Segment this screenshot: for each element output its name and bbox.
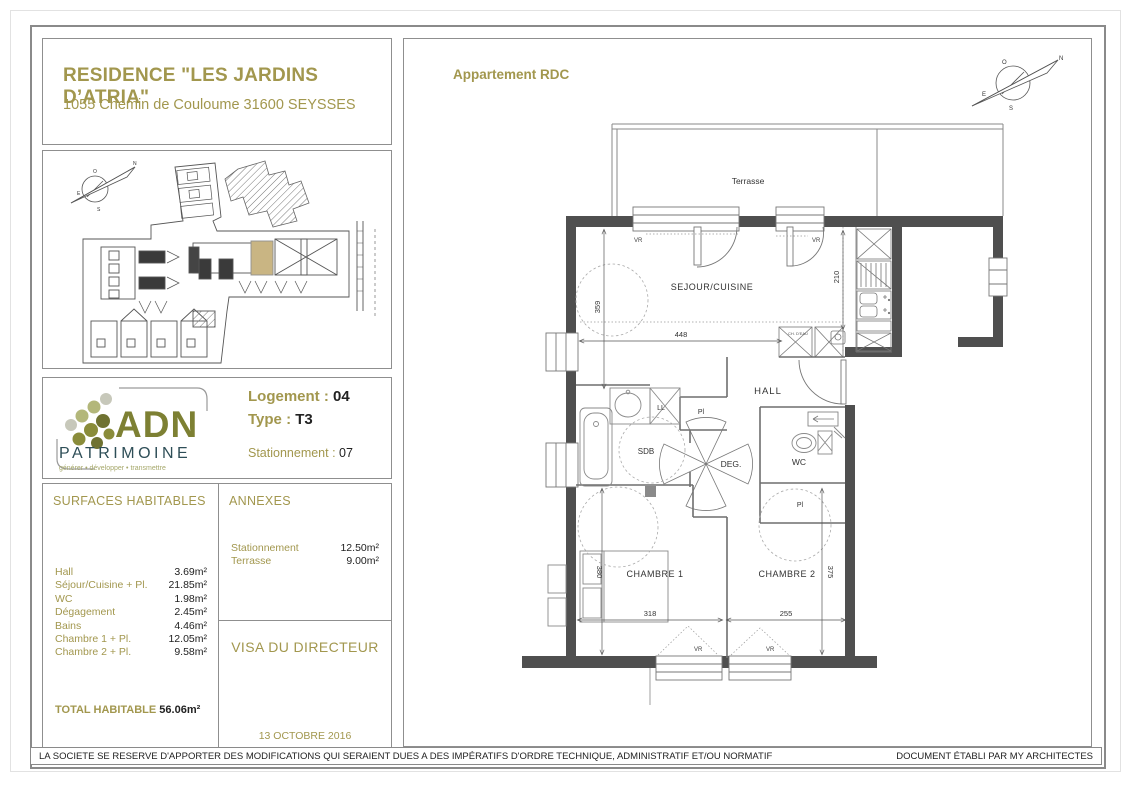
annexe-row: Stationnement12.50m² — [231, 542, 379, 555]
logement-line: Logement : 04 — [248, 388, 388, 405]
logo-name: PATRIMOINE — [59, 445, 191, 462]
site-compass-icon: O N S E — [71, 161, 137, 213]
stationnement-line: Stationnement : 07 — [248, 446, 388, 460]
logo-unit-block: ADN PATRIMOINE générer • développer • tr… — [42, 377, 392, 479]
floor-plan-panel: Appartement RDC — [403, 38, 1092, 747]
adn-patrimoine-logo: ADN PATRIMOINE générer • développer • tr… — [49, 381, 219, 476]
footer-disclaimer: LA SOCIETE SE RESERVE D'APPORTER DES MOD… — [39, 751, 772, 762]
annexe-row: Terrasse9.00m² — [231, 555, 379, 568]
logo-tagline: générer • développer • transmettre — [59, 465, 166, 472]
surface-row: Séjour/Cuisine + Pl.21.85m² — [55, 579, 207, 592]
unit-info: Logement : 04 Type : T3 Stationnement : … — [248, 388, 388, 466]
plan-sheet: RESIDENCE "LES JARDINS D’ATRIA" 1055 Che… — [0, 0, 1131, 800]
svg-text:O: O — [93, 169, 97, 175]
surface-row: Chambre 1 + Pl.12.05m² — [55, 633, 207, 646]
svg-text:N: N — [133, 161, 137, 167]
surface-row: Hall3.69m² — [55, 566, 207, 579]
type-line: Type : T3 — [248, 411, 388, 428]
annexes-title: ANNEXES — [229, 494, 291, 508]
logo-dots — [65, 393, 115, 449]
site-hatched-building — [225, 161, 309, 227]
visa-date: 13 OCTOBRE 2016 — [219, 730, 391, 742]
annexes-block: ANNEXES Stationnement12.50m² Terrasse9.0… — [218, 483, 392, 622]
annexes-rows: Stationnement12.50m² Terrasse9.00m² — [231, 542, 379, 568]
surface-row: WC1.98m² — [55, 593, 207, 606]
surfaces-total: TOTAL HABITABLE 56.06m² — [55, 704, 213, 716]
stationnement-label: Stationnement : — [248, 446, 336, 460]
surfaces-title: SURFACES HABITABLES — [53, 494, 206, 508]
stationnement-value: 07 — [339, 446, 353, 460]
logo-acronym: ADN — [115, 404, 198, 445]
surface-row: Bains4.46m² — [55, 620, 207, 633]
logement-label: Logement : — [248, 388, 329, 405]
surface-row: Chambre 2 + Pl.9.58m² — [55, 646, 207, 659]
residence-title-block: RESIDENCE "LES JARDINS D’ATRIA" 1055 Che… — [42, 38, 392, 145]
surfaces-habitables-block: SURFACES HABITABLES Hall3.69m² Séjour/Cu… — [42, 483, 220, 749]
apartment-title: Appartement RDC — [453, 67, 569, 82]
visa-block: VISA DU DIRECTEUR 13 OCTOBRE 2016 — [218, 620, 392, 749]
site-plan-block: O N S E — [42, 150, 392, 369]
site-plan-drawing: O N S E — [43, 151, 389, 366]
type-value: T3 — [295, 411, 313, 428]
logement-value: 04 — [333, 388, 350, 405]
footer-credit: DOCUMENT ÉTABLI PAR MY ARCHITECTES — [896, 751, 1093, 762]
svg-text:S: S — [97, 207, 101, 213]
visa-title: VISA DU DIRECTEUR — [219, 639, 391, 655]
residence-address: 1055 Chemin de Couloume 31600 SEYSSES — [63, 97, 356, 113]
surfaces-rows: Hall3.69m² Séjour/Cuisine + Pl.21.85m² W… — [55, 566, 207, 660]
footer-bar: LA SOCIETE SE RESERVE D'APPORTER DES MOD… — [30, 747, 1102, 765]
type-label: Type : — [248, 411, 291, 428]
svg-text:E: E — [77, 191, 81, 197]
surface-row: Dégagement2.45m² — [55, 606, 207, 619]
